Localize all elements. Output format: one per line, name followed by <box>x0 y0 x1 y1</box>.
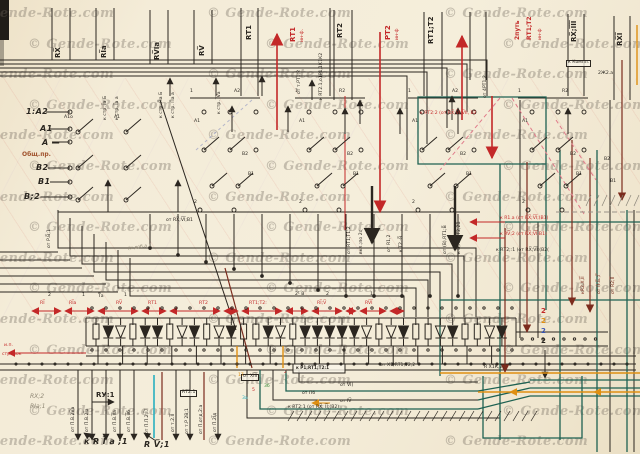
wire-note: от П.В.I̅I̅б <box>128 410 133 432</box>
dim-number: 1 <box>82 294 85 299</box>
wire-note: к стр. I̅а Б <box>104 96 109 120</box>
terminal-label: В2— <box>36 164 57 172</box>
contact-label: 2 <box>522 201 525 206</box>
tick-number: 3б <box>264 385 270 390</box>
tick-number: 3а <box>242 397 248 402</box>
dim-label: RI̅а <box>69 302 76 307</box>
dim-number: 2¹ В <box>295 293 304 298</box>
wire-note: от RТ1;Т1;2 <box>348 226 353 254</box>
contact-label: В2 <box>242 153 248 158</box>
wire-note: к RТ2.1,о1Р1,1К1К2 <box>320 53 325 100</box>
bus-label-red: RТ1 <box>290 27 297 42</box>
contact-label: 1 <box>190 90 193 95</box>
bus-label-red: РТ2 <box>385 25 392 40</box>
tick-number: 2 <box>284 371 287 376</box>
component-box-label: к Р1;RТ1;Т2:1 <box>296 366 329 370</box>
contact-label: 1 <box>518 90 521 95</box>
pencil-note: RIа;1 <box>30 404 45 410</box>
wire-note: от П.П.2;I̅7 <box>146 408 151 434</box>
stack-number: 2 <box>541 328 546 335</box>
wire-note: к стр. П̅а Б <box>160 92 165 118</box>
wire-note: от П.В.2V̅а <box>72 407 77 432</box>
contact-label: 2 <box>412 201 415 206</box>
contact-label: А1 <box>114 116 120 121</box>
wire-note: 2Ж2.а <box>598 72 613 77</box>
contact-label: А1 <box>299 120 305 125</box>
contact-label: А2 <box>452 90 458 95</box>
hand-label: к R I̅ а ;1 <box>84 438 128 446</box>
link-label-red: к R1.а (от RX̅;V̅I̅;(В1) <box>500 217 548 222</box>
wire-note: от т.Р 2В;1 <box>186 408 191 434</box>
contact-label: А1 <box>522 120 528 125</box>
wire-note: от R1,2 <box>388 235 393 252</box>
link-label-red: к RТ2:2 (от RX̅;V̅I;V̅II, В2 <box>420 112 477 117</box>
dim-number: 1 <box>124 294 127 299</box>
bus-label: RV̅Iа <box>154 42 161 60</box>
bus-label: RТ1;Т2 <box>428 17 435 44</box>
component-box-label: к Компл. <box>566 60 591 67</box>
contact-label: А2 <box>234 90 240 95</box>
wire-note: от Р.В̅;1 <box>48 229 53 248</box>
bus-label-red: ин-ф <box>539 28 544 40</box>
contact-label: 1 <box>408 90 411 95</box>
contact-label: 2 <box>194 201 197 206</box>
tick-number: 17 <box>238 374 244 379</box>
wire-note: от П.В.2I̅а <box>86 408 91 432</box>
bus-label-red: ин-ф <box>396 28 401 40</box>
wire-note: к Т2,-В̅ <box>400 236 405 252</box>
bus-label: RX̅I̅ <box>617 33 624 46</box>
dim-number: Т̅а <box>98 295 104 300</box>
bus-label: RX̅;I̅I̅I̅ <box>571 21 578 42</box>
contact-label: В2 <box>604 158 610 163</box>
terminal-label: Общ.пр. <box>22 152 51 158</box>
contact-label: В1 <box>353 173 359 178</box>
wire-note: от П.В.I̅I̅а <box>114 410 119 432</box>
wire-note: от П.отд.2:а <box>200 405 205 434</box>
wire-note: от 4РТ1;2 <box>484 75 489 98</box>
contact-label: В2 <box>347 153 353 158</box>
bus-label: RТ1 <box>246 25 253 40</box>
dim-number: 2 <box>48 294 51 299</box>
dim-label: RI̅;V̅ <box>317 302 326 307</box>
wire-note: от IV̅ <box>340 400 351 405</box>
wire-note: от (В),RТ1;В̅ <box>444 225 449 254</box>
wire-note: от VI̅) <box>340 384 353 389</box>
dim-number: 1 <box>370 293 373 298</box>
stack-number: 2 <box>541 308 546 315</box>
wire-note: от т.РТ1;2 <box>298 70 303 94</box>
hand-label: R V̅;1 <box>144 441 170 449</box>
contact-label: R2 <box>562 90 568 95</box>
link-label: к RТ2;:1 (от RX̅;V̅I̅;(В2( <box>496 249 549 254</box>
schematic-page: © Gende-Rote.com© Gende-Rote.com© Gende-… <box>0 0 640 454</box>
terminal-label: В1— <box>38 178 59 186</box>
dim-label: RV̅ <box>116 302 122 307</box>
wire-note: от RX̅;V̅I̅;В1 <box>166 219 193 224</box>
contact-label: В2 <box>570 153 576 158</box>
contact-label: А1 <box>412 120 418 125</box>
contact-label: В1 <box>248 173 254 178</box>
wire-note: R̅ Х1̅К,2, <box>484 366 504 371</box>
wire-note: от R2;I̅I̅ <box>612 277 617 294</box>
link-label: к RТ2:1 (от RX̅; I̅I̅;(В2) <box>288 406 339 411</box>
bus-label-red: 2путь <box>515 20 521 40</box>
wire-note: от Х1;RТ1;Т2;2 <box>380 364 415 369</box>
dim-label: RТ2 <box>199 302 208 307</box>
terminal-label: А — <box>42 139 60 147</box>
blue-dashed-layer <box>196 100 252 150</box>
contact-label: В2 <box>460 153 466 158</box>
wire-note: к стр. П̅а а <box>172 92 177 118</box>
dim-number: 2 <box>326 293 329 298</box>
contact-label: В1 <box>466 173 472 178</box>
bus-label: RV̅ <box>199 45 206 56</box>
contact-label: R2 <box>339 90 345 95</box>
wire-note: от т.2.I̅I̅ <box>172 414 177 432</box>
feed-label: и.п. <box>4 344 13 349</box>
wire-note: к В̅,RТ1;Т2,2В̅ <box>458 221 463 254</box>
tick-number: 5 <box>252 389 255 394</box>
wire-note: кR2.Х,I̅I̅ <box>582 276 587 294</box>
wire-note: от П.Б̅.;Г̅ <box>598 273 603 294</box>
contact-label: А1 <box>194 120 200 125</box>
feed-label: стрелок <box>2 353 21 358</box>
component-box-label: RТ2:1 <box>180 390 197 397</box>
stack-number: 2 <box>541 318 546 325</box>
terminal-label: А1 — <box>40 125 64 133</box>
wire-note: вкл.;по 2с <box>360 230 365 254</box>
pencil-note: RX;2 <box>30 394 44 400</box>
wire-note: от Пб <box>302 392 315 397</box>
hand-label: RУ:1 <box>96 392 114 399</box>
terminal-label: 1:А2— <box>26 108 57 116</box>
contact-label: В1 <box>576 173 582 178</box>
contact-label: А1о <box>64 116 73 121</box>
bus-label-red: RТ1;Т2 <box>527 16 533 40</box>
bus-label-red: ин-ф. <box>301 29 306 42</box>
bus-label: RТ2 <box>337 23 344 38</box>
bus-label: RI̅а <box>101 45 108 58</box>
stack-number: 2 <box>541 338 546 345</box>
bus-label: RX̅ <box>55 47 62 58</box>
dim-label: RТ1 <box>148 302 157 307</box>
dim-label: RТ1;Т2: <box>249 302 267 307</box>
link-label-red: к RV̅;2 (от RX̅;V̅I̅;В1) <box>500 233 547 238</box>
dim-label: RI̅ <box>40 302 45 307</box>
contact-label: 2 <box>299 201 302 206</box>
terminal-label: В;2— <box>24 193 48 201</box>
dim-label: RV̅I̅ <box>365 302 372 307</box>
wire-note: к стр. I̅V̅а <box>218 91 223 114</box>
contact-label: В1 <box>610 180 616 185</box>
wire-note: от П.2I̅д <box>214 413 219 432</box>
contact-label: 1 <box>295 90 298 95</box>
